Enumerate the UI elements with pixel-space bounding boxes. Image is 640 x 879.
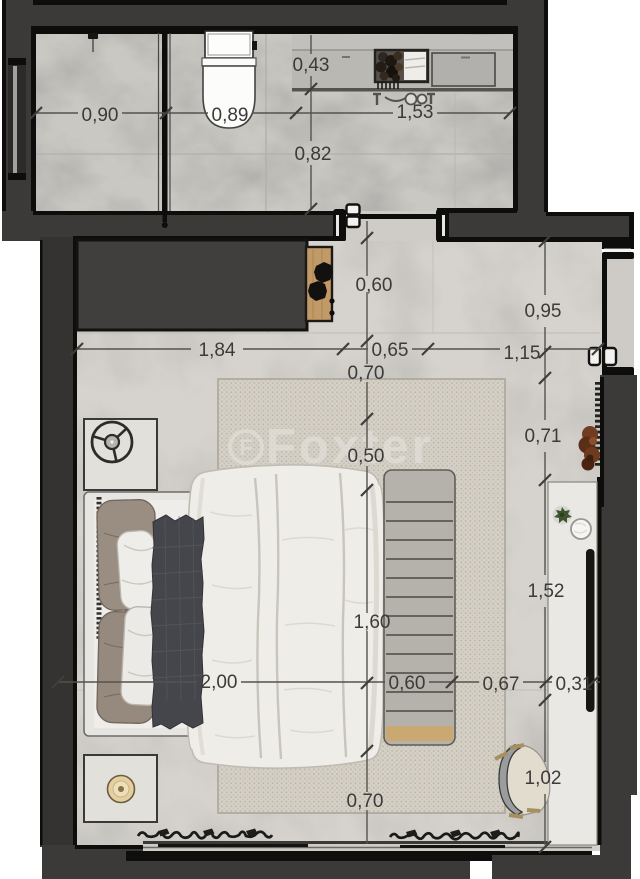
svg-text:1,52: 1,52 — [528, 581, 565, 602]
svg-text:0,71: 0,71 — [525, 426, 562, 447]
svg-text:0,65: 0,65 — [372, 340, 409, 361]
svg-text:0,70: 0,70 — [347, 791, 384, 812]
svg-text:0,50: 0,50 — [348, 446, 385, 467]
svg-text:1,60: 1,60 — [354, 612, 391, 633]
svg-text:0,43: 0,43 — [293, 55, 330, 76]
svg-text:0,67: 0,67 — [483, 674, 520, 695]
svg-text:1,53: 1,53 — [397, 102, 434, 123]
svg-text:0,90: 0,90 — [82, 105, 119, 126]
svg-text:0,95: 0,95 — [525, 301, 562, 322]
svg-text:0,60: 0,60 — [389, 673, 426, 694]
svg-text:1,84: 1,84 — [199, 340, 236, 361]
svg-text:0,60: 0,60 — [356, 275, 393, 296]
svg-text:2,00: 2,00 — [201, 672, 238, 693]
svg-text:1,02: 1,02 — [525, 768, 562, 789]
svg-text:0,70: 0,70 — [348, 363, 385, 384]
svg-text:1,15: 1,15 — [504, 343, 541, 364]
svg-text:0,31: 0,31 — [556, 674, 593, 695]
svg-text:0,89: 0,89 — [212, 105, 249, 126]
svg-text:0,82: 0,82 — [295, 144, 332, 165]
svg-text:F: F — [239, 435, 252, 460]
